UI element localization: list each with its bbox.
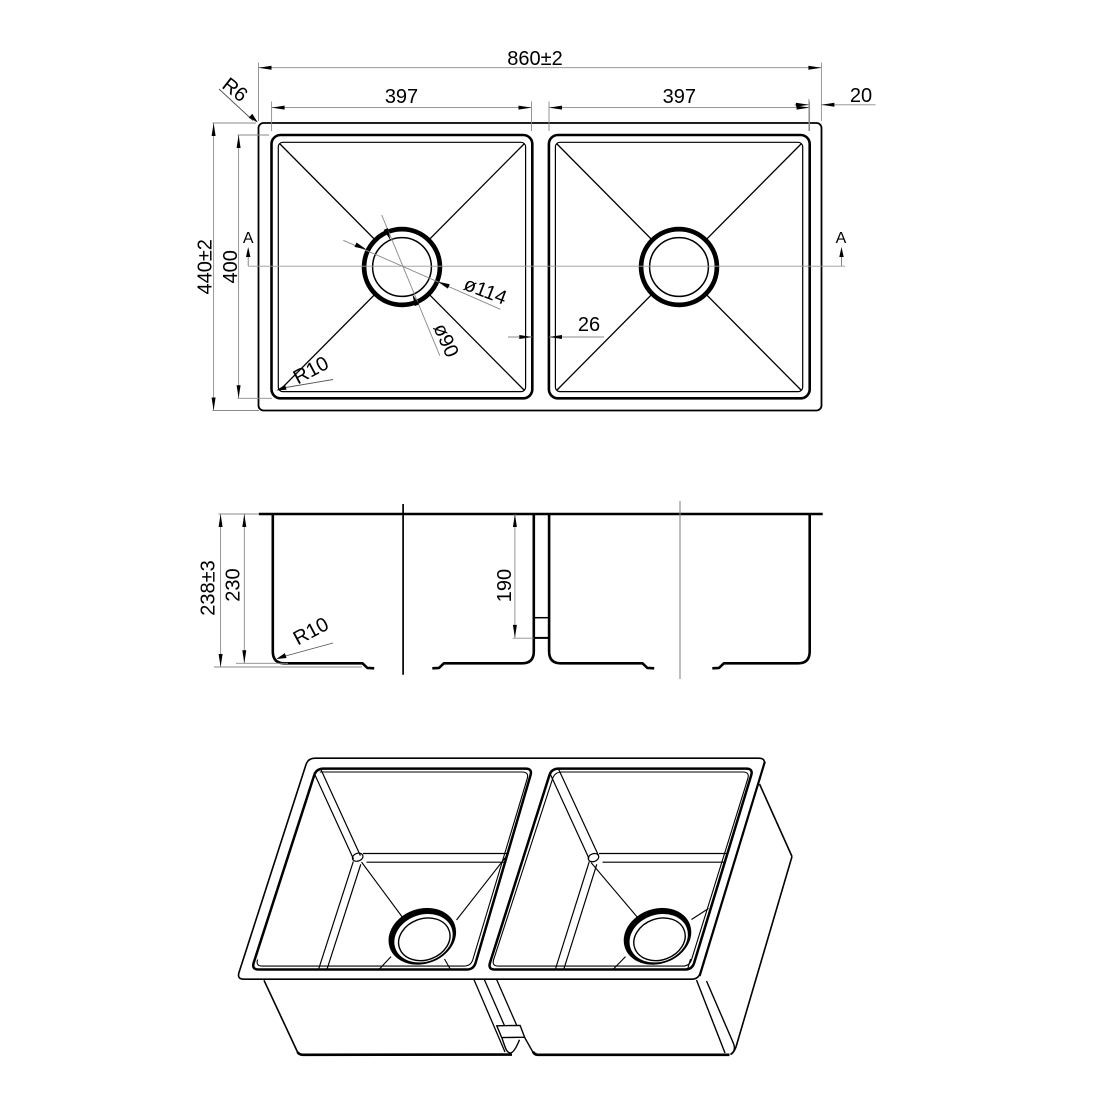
svg-text:397: 397 <box>663 86 696 108</box>
svg-text:A: A <box>836 230 847 247</box>
svg-text:20: 20 <box>850 85 872 107</box>
svg-text:26: 26 <box>578 314 600 336</box>
svg-text:860±2: 860±2 <box>507 48 562 70</box>
svg-text:397: 397 <box>385 86 418 108</box>
svg-text:400: 400 <box>220 250 242 283</box>
svg-text:230: 230 <box>223 568 245 601</box>
svg-text:238±3: 238±3 <box>198 560 220 615</box>
svg-text:A: A <box>243 230 254 247</box>
svg-text:190: 190 <box>494 569 516 602</box>
svg-text:440±2: 440±2 <box>195 239 217 294</box>
